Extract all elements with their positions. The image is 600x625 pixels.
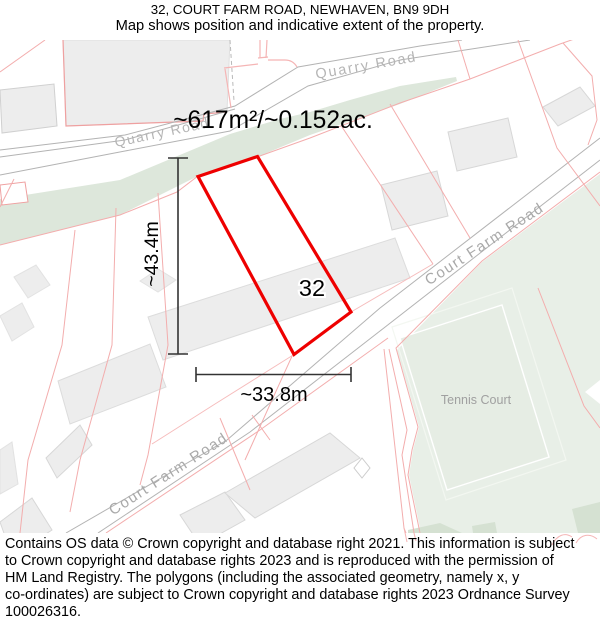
- svg-text:~33.8m: ~33.8m: [240, 384, 307, 406]
- svg-text:32: 32: [299, 275, 325, 301]
- svg-text:~617m²/~0.152ac.: ~617m²/~0.152ac.: [173, 107, 373, 134]
- svg-text:~43.4m: ~43.4m: [141, 221, 163, 287]
- svg-text:Tennis Court: Tennis Court: [441, 393, 512, 407]
